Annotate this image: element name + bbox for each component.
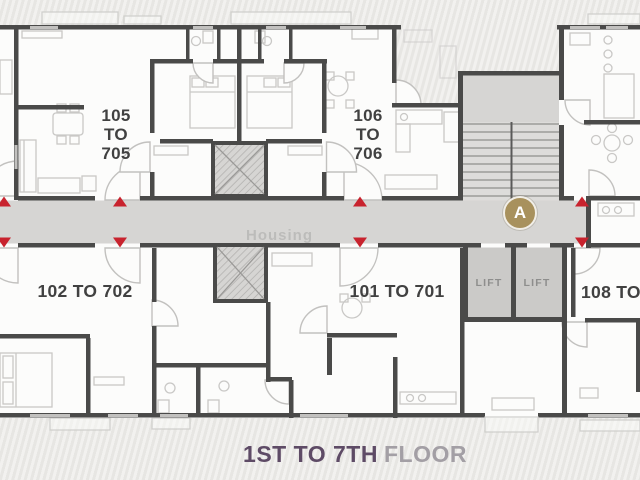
lift-right-label: LIFT xyxy=(514,277,560,289)
lift-left-label: LIFT xyxy=(466,277,512,289)
unit-106-line1: 106 xyxy=(340,106,396,125)
floor-range-text: 1ST TO 7TH xyxy=(243,441,378,467)
staircase xyxy=(463,76,559,201)
block-a-badge: A xyxy=(503,196,537,230)
watermark: Housing xyxy=(246,227,313,244)
unit-105-line1: 105 xyxy=(88,106,144,125)
stair-recess xyxy=(458,25,559,71)
unit-106-line3: 706 xyxy=(340,144,396,163)
unit-108-label: 108 TO xyxy=(581,283,640,302)
unit-105-line3: 705 xyxy=(88,144,144,163)
unit-102-label: 102 TO 702 xyxy=(20,282,150,301)
floor-word-text: FLOOR xyxy=(384,441,467,467)
floor-plan-svg xyxy=(0,0,640,480)
unit-101-label: 101 TO 701 xyxy=(332,282,462,301)
unit-105-label: 105 TO 705 xyxy=(88,106,144,163)
unit-106-line2: TO xyxy=(340,125,396,144)
floor-range-caption: 1ST TO 7THFLOOR xyxy=(175,441,535,468)
unit-106-label: 106 TO 706 xyxy=(340,106,396,163)
floor-plan-page: { "caption": { "range": "1ST TO 7TH", "w… xyxy=(0,0,640,480)
unit-105-line2: TO xyxy=(88,125,144,144)
